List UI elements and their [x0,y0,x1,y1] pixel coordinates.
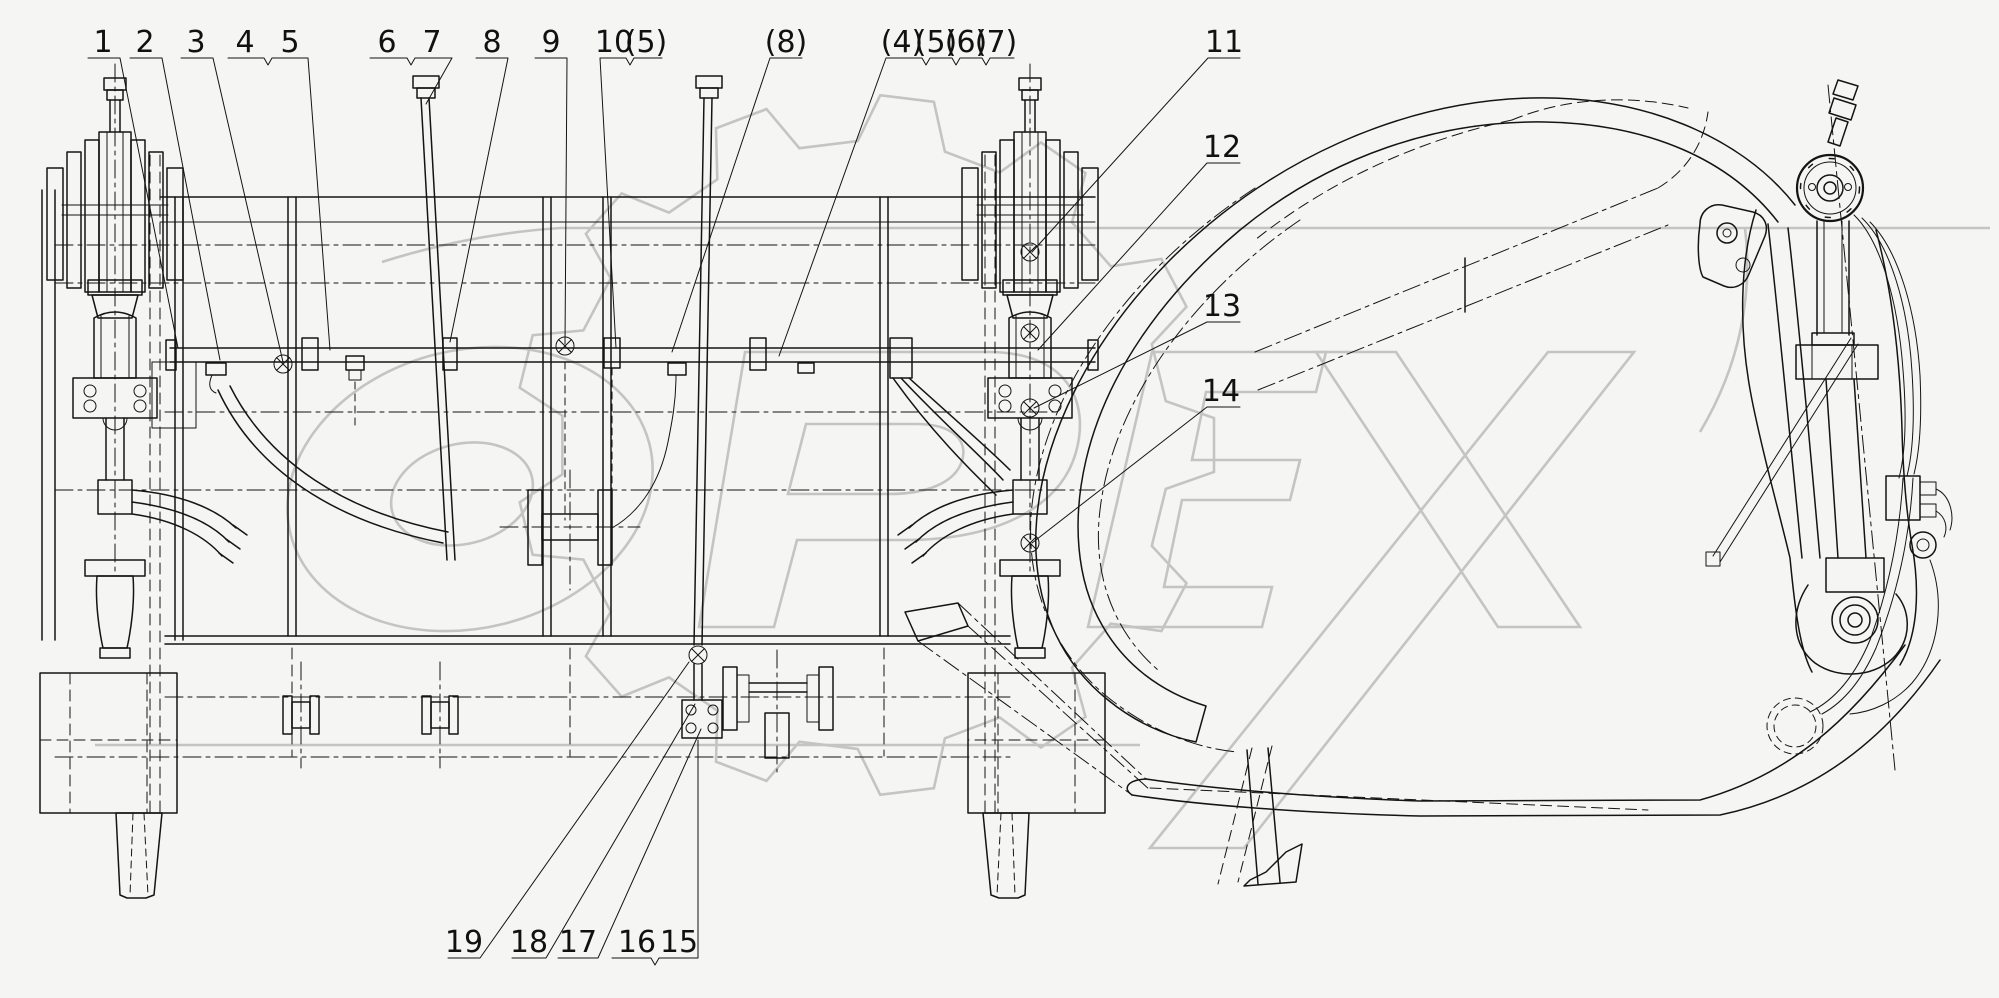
callout-label: 14 [1202,374,1240,409]
callout-leader [512,704,695,958]
grapple-assembly-drawing: OPEX [0,0,1999,998]
callout-leader [181,58,283,362]
callout-leader [672,58,802,352]
callout-label: 2 [135,25,154,60]
callout-label: 19 [445,925,483,960]
position-markers [274,243,1039,664]
callout-label: 16 [618,925,656,960]
callout-label: 11 [1205,25,1243,60]
callout-label: 1 [93,25,112,60]
callout-label: (8) [765,25,808,60]
callout-label: 13 [1203,289,1241,324]
callout-leader [228,58,330,350]
callout-label: 9 [541,25,560,60]
watermark-opex: OPEX [0,0,1634,848]
callout-leader [558,729,701,958]
callout-label: 8 [482,25,501,60]
callout-leaders [88,58,1240,965]
callout-label: 18 [510,925,548,960]
watermark-gear [95,95,1990,794]
callout-label: (7) [975,25,1018,60]
callout-leader [450,58,508,342]
callout-label: 12 [1203,130,1241,165]
callout-label: (5) [625,25,668,60]
callout-leader [88,58,178,348]
position-marker [274,355,292,373]
callout-leader [600,58,662,348]
callout-label: 5 [280,25,299,60]
position-marker [689,646,707,664]
callout-label: 3 [186,25,205,60]
callout-label: 4 [235,25,254,60]
callout-labels: 12345678910(5)(8)(4)(5)(6)(7)11121314191… [93,25,1243,960]
callout-label: 6 [377,25,396,60]
drawing-page: OPEX [0,0,1999,998]
callout-label: 17 [559,925,597,960]
callout-leader [448,662,689,958]
callout-label: 15 [660,925,698,960]
callout-label: 7 [422,25,441,60]
